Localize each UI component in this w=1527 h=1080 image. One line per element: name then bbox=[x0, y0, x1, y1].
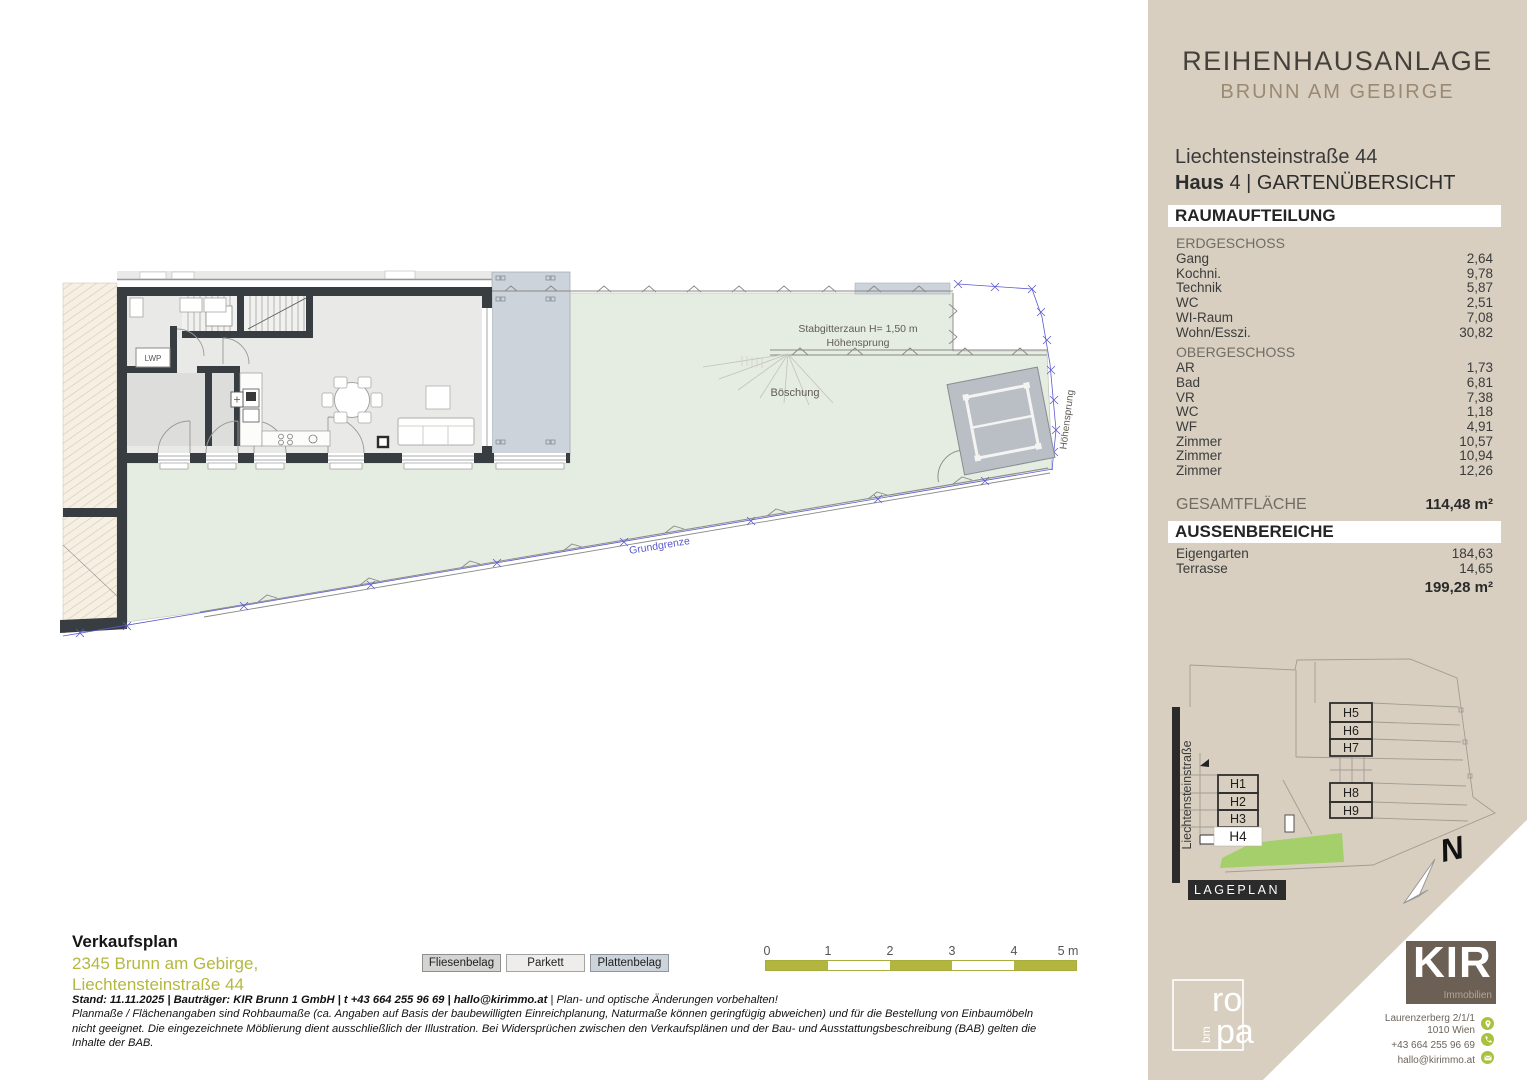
legend-fliesenbelag: Fliesenbelag bbox=[422, 954, 501, 972]
kir-address1: Laurenzerberg 2/1/1 bbox=[1385, 1013, 1475, 1024]
room-row: AR1,73 bbox=[1176, 361, 1493, 376]
room-row: Kochni.9,78 bbox=[1176, 267, 1493, 282]
total-label: GESAMTFLÄCHE bbox=[1176, 496, 1307, 514]
room-value: 9,78 bbox=[1467, 267, 1493, 282]
scale-segment bbox=[1014, 961, 1076, 970]
disclaimer-bold: Stand: 11.11.2025 | Bauträger: KIR Brunn… bbox=[72, 994, 547, 1006]
disclaimer-line-status: Stand: 11.11.2025 | Bauträger: KIR Brunn… bbox=[72, 993, 1134, 1007]
room-value: 4,91 bbox=[1467, 420, 1493, 435]
north-arrow-icon bbox=[1404, 859, 1435, 903]
room-name: Eigengarten bbox=[1176, 547, 1249, 562]
outdoor-list: Eigengarten184,63 Terrasse14,65 199,28 m… bbox=[1168, 545, 1501, 598]
room-value: 7,08 bbox=[1467, 311, 1493, 326]
room-name: Zimmer bbox=[1176, 449, 1222, 464]
house-label-h7: H7 bbox=[1343, 741, 1359, 755]
scale-tick: 2 bbox=[887, 944, 894, 958]
neighbour-parcel-hatch bbox=[63, 283, 117, 633]
outdoor-total: 199,28 m² bbox=[1176, 579, 1493, 596]
unit-label: Haus bbox=[1175, 172, 1224, 194]
project-address: 2345 Brunn am Gebirge, Liechtensteinstra… bbox=[72, 953, 258, 995]
kir-logo: KIR Immobilien bbox=[1406, 941, 1496, 1004]
east-window bbox=[482, 308, 492, 446]
room-row: WI-Raum7,08 bbox=[1176, 311, 1493, 326]
room-row: Bad6,81 bbox=[1176, 376, 1493, 391]
room-value: 7,38 bbox=[1467, 391, 1493, 406]
scale-tick: 1 bbox=[825, 944, 832, 958]
house-label-h8: H8 bbox=[1343, 786, 1359, 800]
location-pin-icon bbox=[1481, 1017, 1494, 1030]
site-plan: H1 H2 H3 H4 H5 H6 H7 H8 H9 Liechtenstein… bbox=[1160, 650, 1527, 908]
kir-brand-sub: Immobilien bbox=[1444, 990, 1492, 1001]
hoehensprung-right-label: Höhensprung bbox=[1058, 389, 1076, 450]
section-label: ERDGESCHOSS bbox=[1176, 235, 1493, 252]
verkaufsplan-page: LWP bbox=[0, 0, 1527, 1080]
lwp-label: LWP bbox=[145, 354, 162, 363]
outdoor-row: Terrasse14,65 bbox=[1176, 562, 1493, 577]
scale-bar-segments bbox=[765, 960, 1077, 971]
room-list: ERDGESCHOSS Gang2,64 Kochni.9,78 Technik… bbox=[1168, 228, 1501, 517]
scale-tick: 5 m bbox=[1058, 944, 1079, 958]
house-label-h6: H6 bbox=[1343, 724, 1359, 738]
phone-icon bbox=[1481, 1033, 1494, 1046]
room-name: Technik bbox=[1176, 281, 1222, 296]
disclaimer-line: Planmaße / Flächenangaben sind Rohbaumaß… bbox=[72, 1007, 1134, 1021]
room-row: WC1,18 bbox=[1176, 405, 1493, 420]
scale-bar: 0 1 2 3 4 5 m bbox=[765, 944, 1077, 971]
ropa-logo: ro pa bm bbox=[1168, 973, 1303, 1063]
grundgrenze-label: Grundgrenze bbox=[628, 535, 691, 557]
fence-label: Stabgitterzaun H= 1,50 m bbox=[798, 323, 918, 335]
scale-segment bbox=[828, 961, 890, 970]
lageplan-caption: LAGEPLAN bbox=[1194, 883, 1280, 897]
street-bar bbox=[1172, 707, 1180, 883]
room-value: 10,94 bbox=[1459, 449, 1493, 464]
info-sidebar: REIHENHAUSANLAGE BRUNN AM GEBIRGE Liecht… bbox=[1148, 0, 1527, 1080]
sidebar-address: Liechtensteinstraße 44 bbox=[1175, 146, 1377, 169]
room-row: WC2,51 bbox=[1176, 296, 1493, 311]
room-value: 1,73 bbox=[1467, 361, 1493, 376]
outdoor-row: Eigengarten184,63 bbox=[1176, 547, 1493, 562]
project-subtitle: BRUNN AM GEBIRGE bbox=[1148, 81, 1527, 104]
street-label: Liechtensteinstraße bbox=[1180, 740, 1194, 849]
room-row: Technik5,87 bbox=[1176, 281, 1493, 296]
scale-tick: 4 bbox=[1011, 944, 1018, 958]
neighbour-wall-cross bbox=[63, 508, 117, 517]
kir-contact: Laurenzerberg 2/1/1 1010 Wien +43 664 25… bbox=[1385, 1013, 1475, 1067]
house-label-h3: H3 bbox=[1230, 812, 1246, 826]
raumaufteilung-heading: RAUMAUFTEILUNG bbox=[1168, 205, 1501, 227]
room-name: AR bbox=[1176, 361, 1195, 376]
room-value: 1,18 bbox=[1467, 405, 1493, 420]
room-value: 2,51 bbox=[1467, 296, 1493, 311]
room-value: 12,26 bbox=[1459, 464, 1493, 479]
room-value: 2,64 bbox=[1467, 252, 1493, 267]
room-vestibule bbox=[212, 373, 234, 446]
room-row: Zimmer10,94 bbox=[1176, 449, 1493, 464]
room-name: Zimmer bbox=[1176, 464, 1222, 479]
room-value: 30,82 bbox=[1459, 326, 1493, 341]
room-wc bbox=[127, 373, 205, 446]
floor-plan-drawing: LWP bbox=[0, 0, 1148, 960]
scale-tick: 3 bbox=[949, 944, 956, 958]
room-row: VR7,38 bbox=[1176, 391, 1493, 406]
room-value: 10,57 bbox=[1459, 435, 1493, 450]
curb-marker bbox=[1200, 759, 1209, 767]
flooring-legend: Fliesenbelag Parkett Plattenbelag bbox=[422, 954, 669, 972]
scale-ticks: 0 1 2 3 4 5 m bbox=[765, 944, 1077, 959]
room-name: Wohn/Esszi. bbox=[1176, 326, 1251, 341]
room-value: 6,81 bbox=[1467, 376, 1493, 391]
hoehensprung-top-label: Höhensprung bbox=[826, 337, 889, 349]
room-name: Kochni. bbox=[1176, 267, 1221, 282]
address-line2: Liechtensteinstraße 44 bbox=[72, 974, 258, 995]
kir-brand: KIR bbox=[1413, 938, 1492, 988]
room-name: WC bbox=[1176, 405, 1199, 420]
neighbour-furniture bbox=[140, 272, 166, 279]
room-value: 184,63 bbox=[1452, 547, 1493, 562]
house-label-h2: H2 bbox=[1230, 795, 1246, 809]
room-name: VR bbox=[1176, 391, 1195, 406]
total-area-row: GESAMTFLÄCHE 114,48 m² bbox=[1176, 496, 1493, 514]
scale-segment bbox=[952, 961, 1014, 970]
disclaimer-line: Inhalte der BAB. bbox=[72, 1036, 1134, 1050]
terrace bbox=[492, 272, 570, 455]
column bbox=[378, 437, 388, 447]
room-name: Gang bbox=[1176, 252, 1209, 267]
unit-rest: 4 | GARTENÜBERSICHT bbox=[1224, 172, 1456, 194]
aussenbereiche-heading: AUSSENBEREICHE bbox=[1168, 521, 1501, 543]
page-title: Verkaufsplan bbox=[72, 932, 178, 952]
room-name: WI-Raum bbox=[1176, 311, 1233, 326]
side-table bbox=[426, 386, 450, 409]
ropa-side: bm bbox=[1199, 1026, 1213, 1043]
room-value: 5,87 bbox=[1467, 281, 1493, 296]
email-icon bbox=[1481, 1051, 1494, 1064]
section-label: OBERGESCHOSS bbox=[1176, 344, 1493, 361]
house-label-h4: H4 bbox=[1229, 829, 1247, 844]
disclaimer: Stand: 11.11.2025 | Bauträger: KIR Brunn… bbox=[72, 993, 1134, 1051]
scale-tick: 0 bbox=[764, 944, 771, 958]
project-title: REIHENHAUSANLAGE bbox=[1148, 46, 1527, 77]
north-letter: N bbox=[1437, 829, 1468, 869]
scale-segment bbox=[890, 961, 952, 970]
kir-phone: +43 664 255 96 69 bbox=[1385, 1040, 1475, 1051]
sidebar-unit: Haus 4 | GARTENÜBERSICHT bbox=[1175, 172, 1455, 195]
ropa-line2: pa bbox=[1216, 1013, 1254, 1051]
total-value: 114,48 m² bbox=[1425, 496, 1493, 513]
neighbour-furniture bbox=[172, 272, 194, 279]
room-value: 14,65 bbox=[1459, 562, 1493, 577]
charger-symbol bbox=[1285, 815, 1294, 832]
room-row: Zimmer10,57 bbox=[1176, 435, 1493, 450]
legend-plattenbelag: Plattenbelag bbox=[590, 954, 669, 972]
legend-parkett: Parkett bbox=[506, 954, 585, 972]
room-row: Wohn/Esszi.30,82 bbox=[1176, 326, 1493, 341]
room-name: WC bbox=[1176, 296, 1199, 311]
house-label-h9: H9 bbox=[1343, 804, 1359, 818]
south-windows bbox=[158, 453, 566, 469]
room-name: WF bbox=[1176, 420, 1197, 435]
sofa bbox=[398, 418, 474, 445]
address-line1: 2345 Brunn am Gebirge, bbox=[72, 953, 258, 974]
room-row: Gang2,64 bbox=[1176, 252, 1493, 267]
room-row: WF4,91 bbox=[1176, 420, 1493, 435]
neighbour-furniture bbox=[385, 271, 415, 279]
neighbour-terrace bbox=[855, 283, 950, 294]
scale-segment bbox=[766, 961, 828, 970]
room-name: Bad bbox=[1176, 376, 1200, 391]
room-name: Zimmer bbox=[1176, 435, 1222, 450]
house-label-h5: H5 bbox=[1343, 706, 1359, 720]
house-label-h1: H1 bbox=[1230, 777, 1246, 791]
disclaimer-line: nicht geeignet. Die eingezeichnete Möbli… bbox=[72, 1022, 1134, 1036]
room-row: Zimmer12,26 bbox=[1176, 464, 1493, 479]
disclaimer-tail: | Plan- und optische Änderungen vorbehal… bbox=[547, 994, 778, 1006]
kir-address2: 1010 Wien bbox=[1385, 1025, 1475, 1036]
room-name: Terrasse bbox=[1176, 562, 1228, 577]
kir-email: hallo@kirimmo.at bbox=[1385, 1055, 1475, 1066]
boeschung-label: Böschung bbox=[771, 387, 820, 399]
